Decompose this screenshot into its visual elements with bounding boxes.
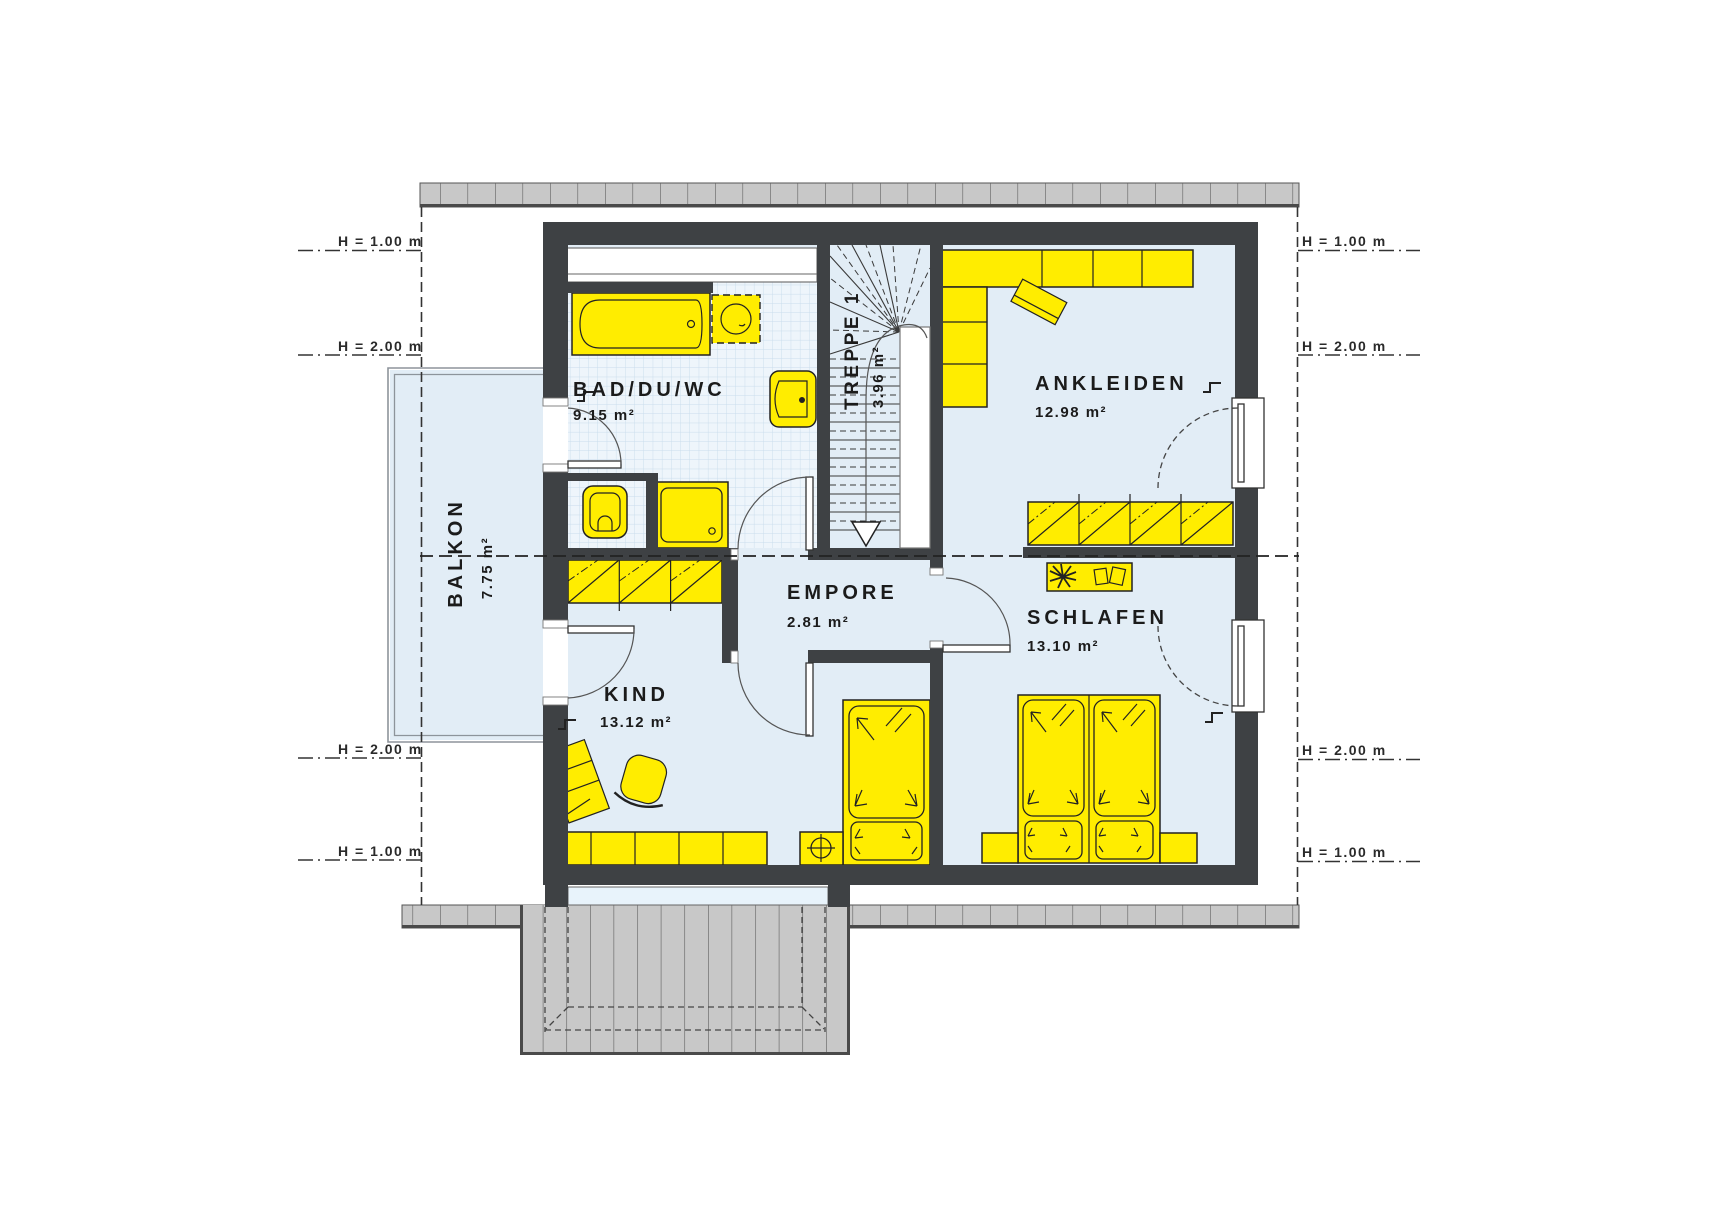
sideboard-kind	[547, 832, 767, 865]
area-kind: 13.12 m²	[600, 714, 672, 731]
h-marker-bottom-right-1: H = 1.00 m	[1302, 844, 1387, 860]
terrace	[520, 905, 850, 1055]
washbasin	[770, 371, 816, 427]
closet-ankleiden	[1028, 494, 1233, 545]
stair-well-void	[900, 327, 930, 548]
floorplan-canvas: H = 1.00 m H = 2.00 m H = 2.00 m H = 1.0…	[0, 0, 1720, 1216]
area-bad: 9.15 m²	[573, 407, 635, 424]
sideboard-plant-schlafen	[1047, 563, 1132, 591]
h-marker-bottom-left-1: H = 1.00 m	[338, 843, 423, 859]
nightstand-right	[1160, 833, 1197, 863]
washing-machine-dashed	[712, 295, 760, 343]
dormer-window-strip-top	[563, 248, 817, 282]
stool-kind	[800, 832, 843, 865]
label-schlafen: SCHLAFEN	[1027, 607, 1168, 629]
label-bad: BAD/DU/WC	[573, 379, 726, 401]
area-ankleiden: 12.98 m²	[1035, 404, 1107, 421]
label-ankleiden: ANKLEIDEN	[1035, 373, 1188, 395]
balcony	[388, 368, 547, 742]
nightstand-left	[982, 833, 1018, 863]
label-treppe: TREPPE 1	[842, 290, 863, 410]
floorplan-drawing: H = 1.00 m H = 2.00 m H = 2.00 m H = 1.0…	[0, 0, 1720, 1216]
h-marker-top-right-2: H = 2.00 m	[1302, 338, 1387, 354]
area-balkon: 7.75 m²	[479, 537, 496, 599]
label-empore: EMPORE	[787, 582, 898, 604]
area-empore: 2.81 m²	[787, 614, 849, 631]
h-marker-bottom-right-2: H = 2.00 m	[1302, 742, 1387, 758]
h-marker-top-left-2: H = 2.00 m	[338, 338, 423, 354]
label-kind: KIND	[604, 684, 669, 706]
h-marker-bottom-left-2: H = 2.00 m	[338, 741, 423, 757]
dormer-window-strip-bottom	[568, 887, 828, 905]
closet-kind	[568, 560, 722, 611]
toilet	[583, 486, 627, 538]
h-marker-top-right-1: H = 1.00 m	[1302, 233, 1387, 249]
roof-band-top	[420, 183, 1299, 207]
single-bed-kind	[843, 700, 930, 865]
area-treppe: 3.96 m²	[870, 346, 887, 408]
shower	[655, 482, 728, 548]
h-marker-top-left-1: H = 1.00 m	[338, 233, 423, 249]
area-schlafen: 13.10 m²	[1027, 638, 1099, 655]
bathtub	[572, 293, 710, 355]
label-balkon: BALKON	[445, 498, 467, 608]
